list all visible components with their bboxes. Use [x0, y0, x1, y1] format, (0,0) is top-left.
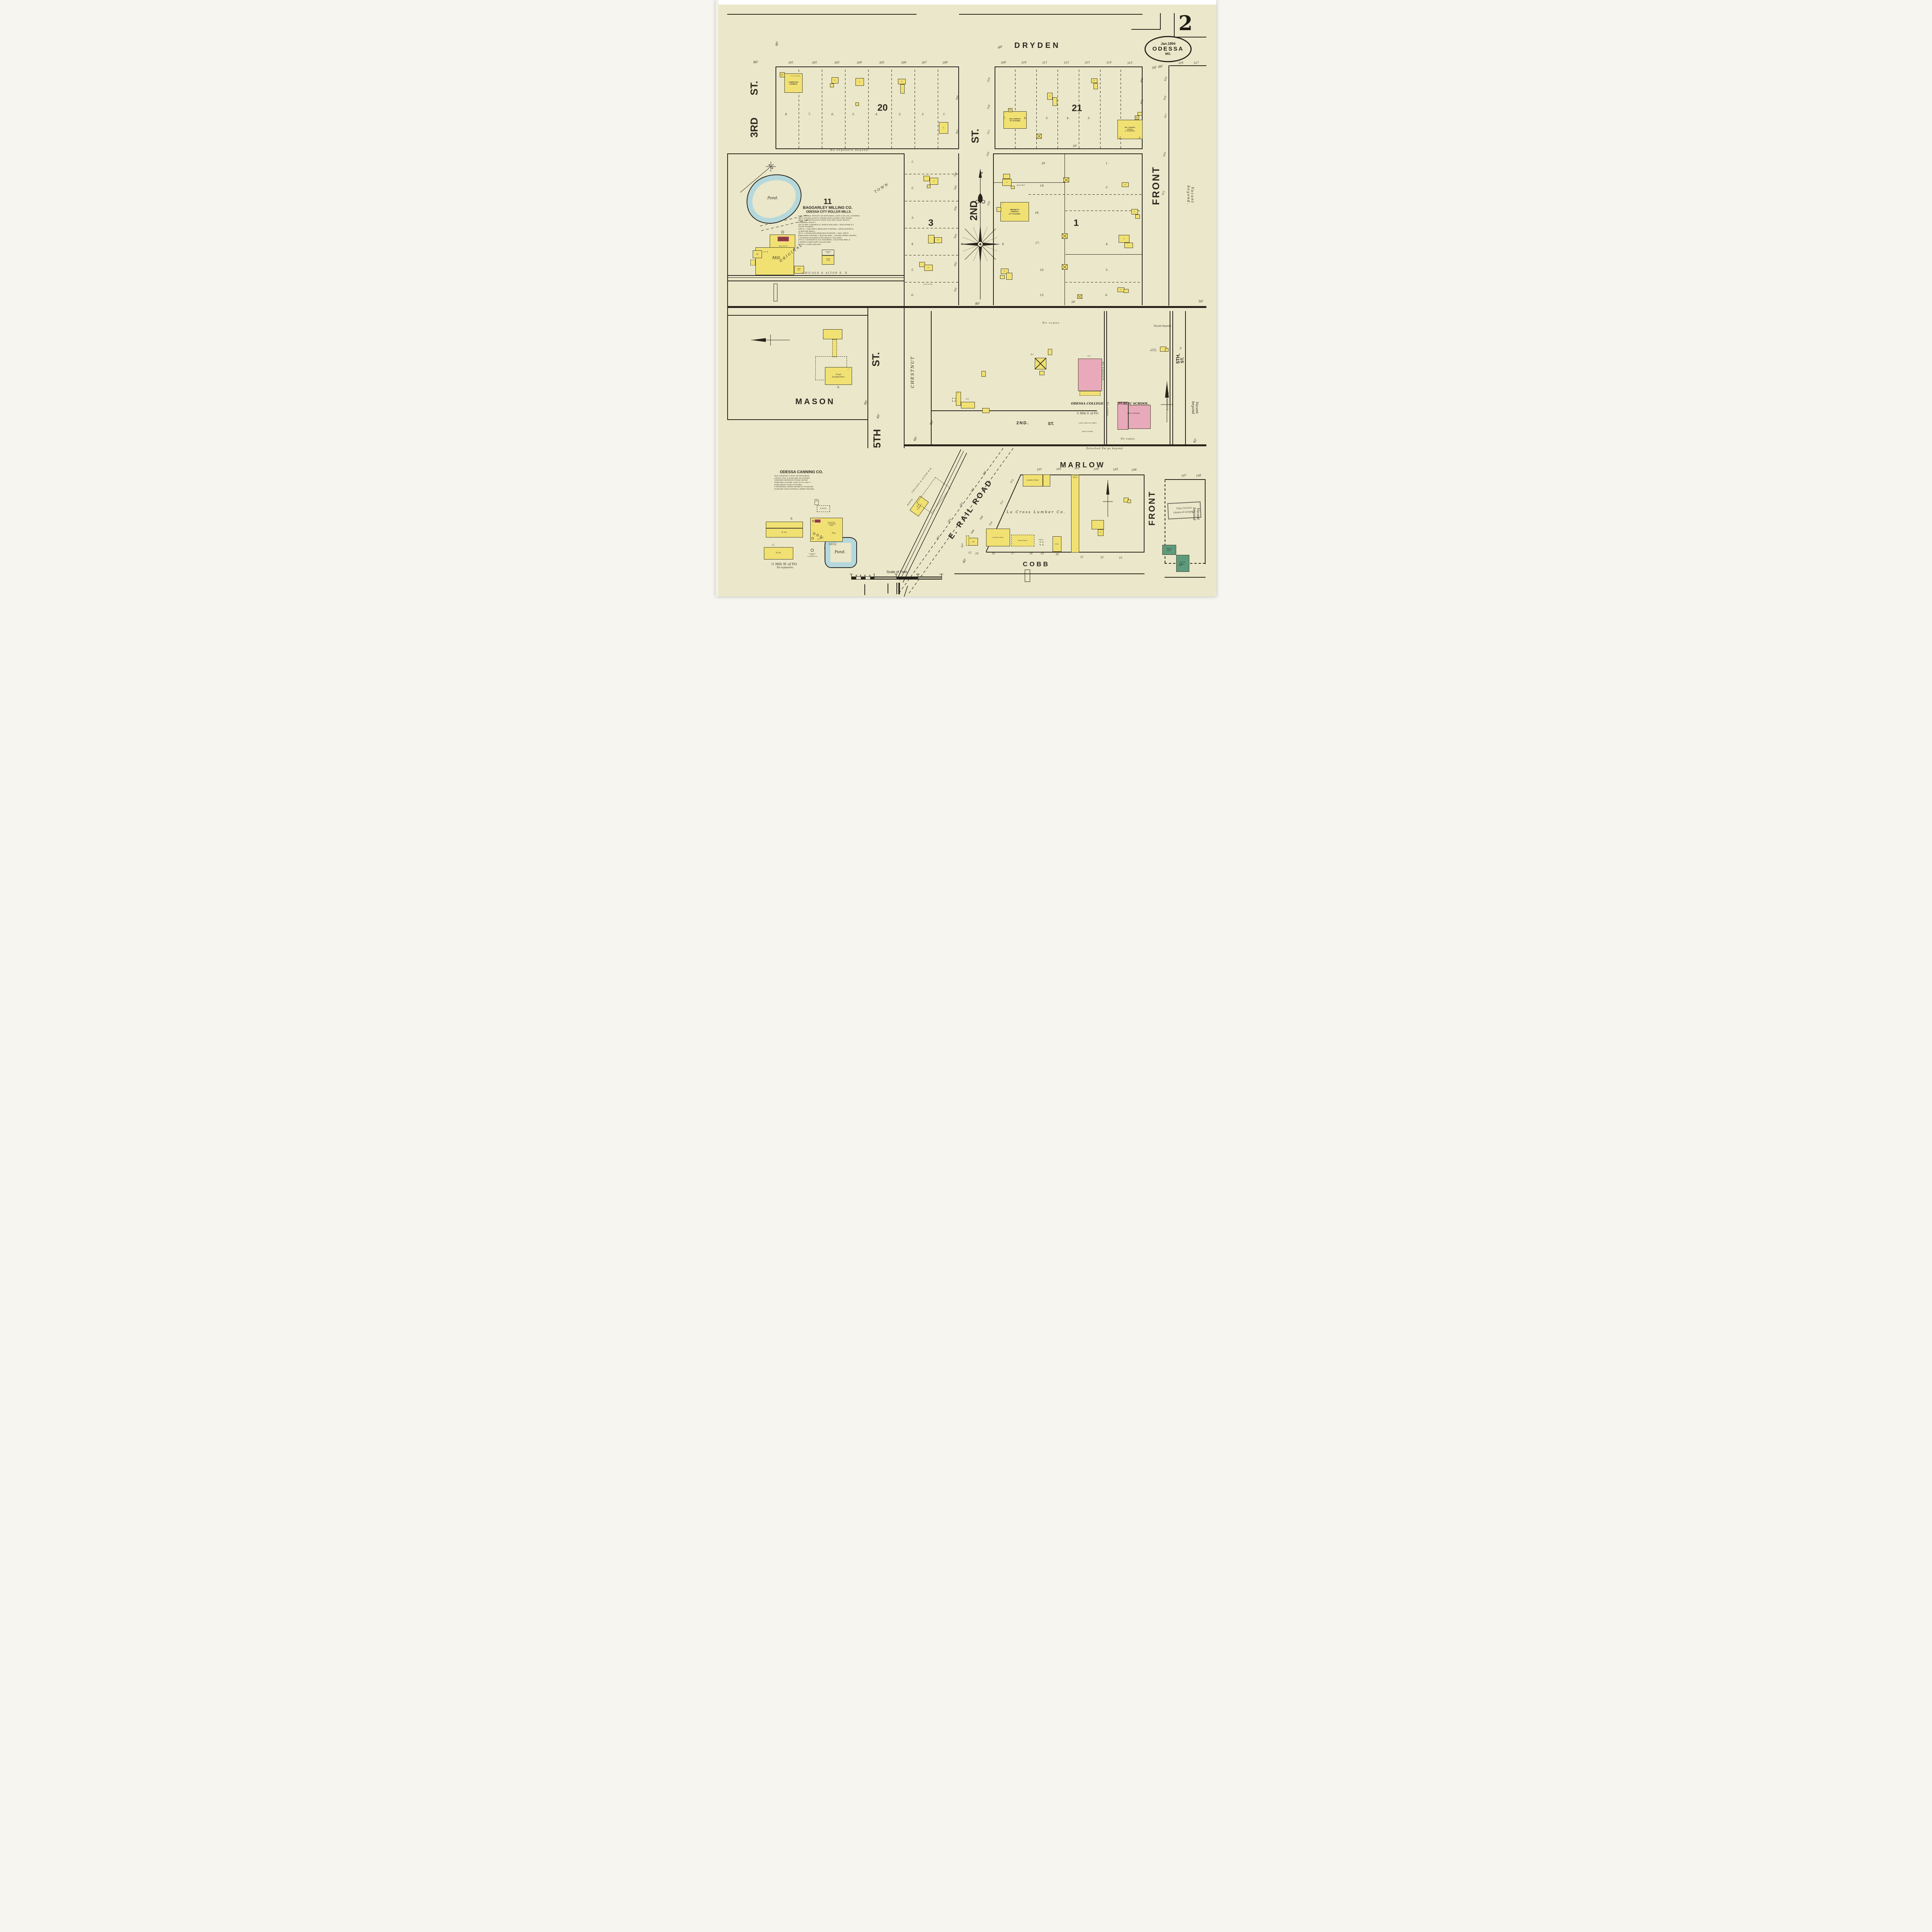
building-label: Hitch Shed.	[1018, 540, 1027, 542]
building: D.	[930, 178, 938, 185]
building	[816, 534, 819, 536]
building	[1035, 358, 1046, 369]
map-label: 7.	[808, 113, 811, 116]
school-text: PUBLIC SCHOOL. HEAT; STOVES.	[1118, 395, 1149, 421]
map-label: 50	[850, 573, 852, 576]
map-label: 20'	[1071, 301, 1076, 304]
map-label: Sack R'm.	[798, 268, 801, 271]
map-label: Tower 50'	[1135, 117, 1138, 119]
map-label: No expos.	[1121, 438, 1136, 441]
map-label: E	[1002, 243, 1004, 246]
school-name: PUBLIC SCHOOL.	[1118, 402, 1149, 405]
building: D.	[939, 122, 948, 134]
stamp-state: MO.	[1165, 53, 1171, 56]
block-21-number: 21	[1072, 104, 1082, 114]
map-label: No exposure.	[1166, 392, 1168, 412]
map-line	[900, 451, 964, 580]
map-label: D.	[824, 548, 826, 550]
mill-boiler	[777, 236, 789, 241]
pond-label: Pond.	[835, 550, 845, 554]
building	[961, 402, 975, 408]
building-label: Wagon Shop.	[1167, 548, 1172, 552]
building	[1062, 264, 1068, 270]
block-20-number: 20	[878, 103, 888, 114]
scale-segment	[856, 577, 861, 579]
building	[811, 549, 814, 552]
street-2nd-st: ST.	[969, 129, 981, 143]
map-label: 20	[864, 574, 866, 576]
description-line: GASOLINE TANK OUTSIDE & UNDER GROUND.	[774, 488, 842, 490]
map-label: B.	[791, 518, 793, 521]
map-label: DRYDEN	[1014, 41, 1061, 50]
building	[1003, 174, 1010, 179]
building-label: Off.	[972, 541, 975, 543]
map-label: 50	[895, 573, 897, 576]
map-label: 2.	[1106, 186, 1109, 189]
presbyterian-church-tower	[997, 207, 1001, 212]
building	[1011, 186, 1015, 189]
map-label: 1½ 16' TO EAVES.	[791, 75, 800, 77]
map-label: 5.	[1106, 269, 1109, 272]
building	[766, 522, 803, 528]
building: D.	[934, 237, 942, 243]
map-label: 1½	[957, 393, 959, 394]
me-church-building: M.E. CHURCH. 11' TO EAVES.	[1003, 111, 1027, 129]
map-label: 5.	[852, 113, 855, 116]
map-label: Off.	[756, 253, 759, 255]
blacksmith-shop-building: Bl. Sm. Shop.	[1176, 555, 1189, 572]
map-label: 1.	[943, 113, 946, 116]
map-label: C.I.	[1088, 355, 1091, 358]
map-label: 23	[1119, 556, 1122, 559]
odessa-college-building	[1078, 359, 1102, 391]
page-number: 2	[1179, 12, 1192, 35]
hitch-shed: Hitch Shed.	[1011, 535, 1034, 546]
map-label: WELL.	[814, 499, 820, 500]
school-heat: HEAT; STOVES.	[1118, 412, 1149, 414]
pond-label: Pond.	[767, 196, 778, 200]
block-11-number: 11	[823, 197, 832, 206]
building	[1128, 500, 1131, 503]
building	[815, 501, 819, 505]
map-label: 3½. B.	[763, 251, 768, 253]
map-label: 8.	[785, 113, 788, 116]
building	[1094, 83, 1098, 89]
building-label: D.	[834, 80, 836, 81]
map-label: No exposure beyond.	[830, 150, 870, 152]
map-label: 18.	[1035, 212, 1039, 215]
scale-segment	[861, 577, 866, 579]
scale-bar	[851, 577, 942, 580]
wagon-shop-building: Wagon Shop.	[1162, 545, 1176, 555]
building	[981, 371, 986, 377]
map-label: No exposures.	[777, 567, 794, 570]
map-label: C.	[772, 544, 775, 547]
map-label: 0	[873, 573, 874, 576]
building	[1135, 214, 1140, 219]
building-label: W. Ho.	[776, 552, 782, 554]
map-label: Vacant beyond.	[1154, 325, 1172, 328]
baggarley-name: BAGGARLEY MILLING CO.	[803, 206, 852, 210]
map-label: 17	[1011, 552, 1014, 555]
map-label: GASOLINE TANK, UNDERGROUND	[807, 553, 818, 557]
map-label: 1½	[848, 369, 850, 370]
map-label: 1 SCALES X SHED.	[825, 251, 831, 253]
date-stamp: Jan.1894 ODESSA MO.	[1145, 36, 1192, 62]
map-label: 7.	[1003, 117, 1006, 120]
street-2nd-horizontal: 2ND.	[1016, 421, 1029, 425]
building	[1036, 134, 1042, 139]
map-label: 24	[1179, 564, 1182, 567]
map-line	[904, 586, 908, 597]
building	[1063, 177, 1069, 182]
canning-description: RUN 4 MONTHS A YEAR. NO WATCHMAN.LIGHTS;…	[774, 475, 842, 490]
building-label: D.	[1100, 532, 1101, 534]
scale-segment	[852, 577, 856, 579]
map-label: 30	[859, 574, 861, 576]
map-label: WELL.	[1039, 539, 1044, 541]
map-label: 16.	[1040, 269, 1044, 272]
block-1-number: 1	[1073, 218, 1078, 229]
building-label: D.	[1049, 95, 1051, 97]
building	[1165, 348, 1168, 352]
building: D.	[1047, 93, 1053, 100]
map-label: 3.	[899, 113, 901, 116]
map-label: A.	[837, 386, 840, 389]
building: D.	[1131, 209, 1138, 214]
lacross-lumber-label: La Cross Lumber Co.	[1007, 510, 1066, 514]
building-label: D.	[859, 81, 861, 83]
lumber-shed-1: Lumber Shed.	[1023, 474, 1043, 486]
building: D.	[855, 78, 864, 86]
presbyterian-church-building: PRESBY'N. CHURCH. 12' TO EAVES.	[1000, 202, 1029, 221]
sanborn-map-page: 2 Jan.1894 ODESSA MO. 11 BAGGARLEY MILLI…	[716, 0, 1216, 597]
map-label: Vacant beyond	[1191, 397, 1199, 418]
map-label: 6.	[1024, 117, 1027, 120]
street-3rd-st: ST.	[748, 81, 760, 95]
building	[1006, 273, 1012, 280]
map-label: Canning & Soldering.	[828, 543, 837, 546]
map-label: ST.	[1048, 422, 1054, 426]
map-label: 1.	[1106, 162, 1109, 165]
baggarley-description: CAP; 100 BBLS. PER DAY. NO WATCHMAN. LIG…	[798, 215, 881, 245]
map-label: No exposure.	[1101, 362, 1104, 382]
canning-boiler	[815, 519, 821, 523]
map-label: 4.	[876, 113, 878, 116]
map-label: 4.	[1106, 243, 1109, 246]
building	[1039, 371, 1044, 375]
street-cobb: COBB	[1023, 560, 1050, 568]
map-line	[903, 453, 967, 582]
scale-segment	[918, 577, 942, 579]
building	[928, 235, 934, 243]
building	[813, 532, 815, 535]
map-label: 1½	[1002, 203, 1004, 204]
map-label: Tower 40'	[1009, 109, 1011, 111]
building	[855, 102, 859, 106]
building	[1077, 294, 1082, 299]
building-label: Fruit Evaporator.	[832, 374, 845, 379]
map-label: 130' TO P.O.	[923, 284, 933, 285]
map-label: 6.	[1105, 294, 1108, 297]
map-label: 20	[1056, 553, 1059, 556]
college-distance: ½ Mile S. of P.O.	[1071, 412, 1105, 415]
description-line: B'S'M'T; 1 CORN SHELLER.	[798, 243, 881, 246]
street-5th: 5TH	[871, 429, 883, 448]
scale-segment	[874, 577, 896, 579]
map-label: 16	[992, 552, 995, 555]
building	[781, 231, 784, 233]
map-label: Vacant beyond.	[1186, 182, 1194, 208]
building: D.	[898, 79, 906, 84]
map-label: 50'	[1199, 300, 1203, 304]
map-label: No expos.	[1106, 402, 1109, 417]
building: D.	[1091, 78, 1097, 83]
building	[1043, 474, 1050, 486]
map-label: 10	[869, 574, 871, 576]
stamp-city: ODESSA	[1152, 46, 1184, 53]
building-label: Lime.	[1055, 543, 1059, 545]
map-label: 20'	[1073, 145, 1077, 148]
map-label: 6.	[912, 294, 914, 297]
building	[966, 536, 969, 546]
map-label: ALLEY	[1017, 185, 1025, 187]
library-of-congress-stamp: Map Division Library of Congress	[1167, 502, 1201, 519]
scale-segment	[896, 577, 918, 579]
map-label: SCALES.	[820, 508, 827, 509]
building	[830, 83, 834, 87]
map-label: 1.	[1139, 137, 1141, 140]
map-label: 100	[916, 573, 919, 576]
lumber-office: Off.	[969, 538, 978, 546]
building-label: Lumber Shed.	[1027, 480, 1039, 481]
baggarley-subtitle: ODESSA CITY ROLLER MILLS.	[806, 211, 851, 214]
map-label: 18	[1029, 552, 1032, 555]
building	[900, 84, 905, 94]
building-label: Lumber Shed.	[993, 537, 1004, 539]
lumber-shed-2: Lumber Shed.	[1071, 474, 1079, 553]
street-front-south: FRONT	[1148, 491, 1157, 526]
map-label: 2.	[912, 187, 914, 190]
map-label: 15	[968, 551, 971, 554]
building-label: PRESBY'N. CHURCH. 12' TO EAVES.	[1009, 209, 1021, 215]
map-label: 20	[1042, 162, 1045, 165]
map-label: 1.	[912, 161, 914, 164]
building	[1062, 233, 1068, 239]
college-name: ODESSA COLLEGE.	[1071, 402, 1105, 405]
college-light: LIGHT; COAL OIL LAMPS.	[1071, 422, 1105, 424]
building: D.	[1119, 235, 1129, 243]
building-label: W. Ho.	[782, 532, 787, 534]
map-label: Tower 50'	[781, 74, 783, 76]
building: D.	[924, 265, 933, 271]
building: D.	[1098, 529, 1104, 536]
building-label: M.E. CHURCH. 11' TO EAVES.	[1009, 118, 1020, 122]
map-label: 2.	[1119, 137, 1122, 140]
map-label: 19	[1041, 552, 1044, 555]
lumber-shed-3: Lumber Shed.	[986, 529, 1010, 546]
map-label: 4.	[1067, 117, 1070, 120]
map-label: 80'	[975, 303, 980, 306]
map-label: Eng.	[832, 532, 836, 534]
canning-name: ODESSA CANNING CO.	[780, 470, 823, 474]
map-label: Receiving & Shipping Shed.	[828, 522, 836, 526]
building	[1048, 349, 1052, 355]
building	[927, 185, 930, 188]
map-label: 4.	[912, 243, 914, 246]
map-label: 3.	[1088, 117, 1090, 120]
building	[1040, 542, 1043, 545]
map-label: 22	[1100, 556, 1104, 559]
mill-label: Mill.	[772, 256, 781, 260]
building-label: D.	[928, 267, 929, 269]
building-label: CHRISTIAN CHURCH.	[789, 81, 798, 85]
map-label: 15.	[1040, 294, 1044, 297]
map-label: No expos.	[1043, 322, 1061, 325]
map-label: N	[981, 172, 983, 175]
building	[811, 537, 814, 539]
canning-warehouse-b: W. Ho.	[766, 528, 803, 537]
college-text: ODESSA COLLEGE. ½ Mile S. of P.O. LIGHT;…	[1071, 395, 1105, 439]
building-label: D.	[1124, 184, 1126, 185]
building-label: Lumber Shed.	[1072, 475, 1078, 478]
map-label: A.I.	[966, 398, 969, 401]
building-label: D.	[1123, 238, 1125, 240]
map-label: 3.	[912, 217, 914, 220]
map-label: 5.	[1046, 117, 1049, 120]
map-label: 150	[939, 573, 943, 576]
building	[952, 398, 956, 401]
map-label: Detached Dw'gs beyond.	[1086, 448, 1124, 451]
street-mason: MASON	[795, 397, 835, 406]
building	[812, 520, 814, 522]
building: D.	[1122, 182, 1129, 187]
building	[832, 339, 837, 357]
map-label: 5.	[912, 269, 914, 272]
map-label: 19.	[1040, 185, 1044, 188]
building	[1092, 520, 1104, 529]
street-2nd: 2ND	[968, 201, 979, 221]
building	[923, 176, 930, 181]
building-label: D.	[1094, 80, 1095, 82]
canning-warehouse-c: W. Ho.	[764, 547, 793, 560]
building	[1138, 112, 1142, 116]
loc-stamp-line2: Library of Congress	[1173, 510, 1196, 515]
map-label: Carpet Weaving.	[1150, 349, 1157, 352]
building	[982, 408, 990, 413]
map-label: ST.	[1180, 357, 1185, 363]
map-label: ¼ Mile W. of P.O.	[771, 563, 798, 566]
building	[1124, 289, 1129, 293]
street-chestnut: CHESTNUT	[910, 356, 915, 388]
building: D.	[1002, 179, 1012, 186]
building-label: D.	[937, 239, 939, 241]
scale-segment	[866, 577, 870, 579]
map-label: 16	[975, 552, 978, 555]
building: D.	[832, 77, 838, 83]
map-label: 2.	[922, 113, 925, 116]
map-label: ENG. 45 H.P.	[779, 245, 788, 247]
map-label: 17.	[1035, 242, 1039, 245]
scale-segment	[870, 577, 874, 579]
street-front: FRONT	[1151, 166, 1162, 205]
map-label: 40	[855, 574, 857, 576]
building-label: D.	[901, 81, 903, 82]
map-label: 80'	[753, 61, 758, 65]
railroad-label: CHICAGO & ALTON R. R.	[803, 272, 849, 275]
building-label: D.	[933, 180, 935, 182]
building-label: D.	[943, 127, 944, 129]
building-label: D.	[1120, 289, 1122, 291]
map-label: 1½	[1005, 112, 1007, 113]
map-label: 6.	[832, 113, 834, 116]
street-3rd: 3RD	[748, 117, 760, 138]
building-label: D.	[1004, 270, 1005, 272]
map-label: 21	[1080, 556, 1083, 558]
block-3-number: 3	[928, 218, 933, 229]
building-label: M.E. CHURCH, SOUTH. 8' TO EAVES.	[1125, 127, 1136, 132]
map-label: Scales 1 Off.	[826, 259, 830, 262]
lime-house: Lime.	[1053, 536, 1061, 552]
building	[1053, 97, 1057, 106]
building	[750, 260, 755, 265]
building	[823, 329, 842, 339]
building-label: D.	[1134, 211, 1136, 213]
map-label: B.I.	[1031, 354, 1034, 356]
street-5th-st: ST.	[870, 352, 881, 367]
building-label: D.	[1006, 182, 1008, 183]
building	[1124, 243, 1133, 248]
college-heat: HEAT; STOVES.	[1071, 431, 1105, 432]
map-label: W	[961, 243, 964, 246]
building	[1000, 275, 1005, 279]
